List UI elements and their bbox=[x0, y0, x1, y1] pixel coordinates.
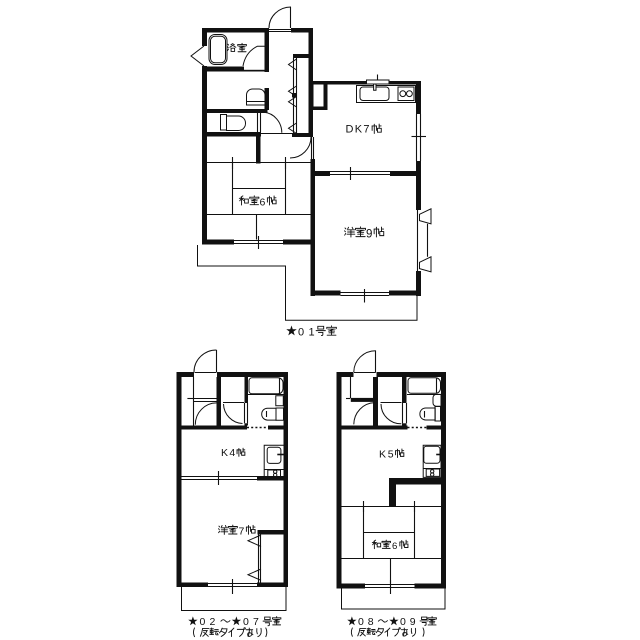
svg-text:7: 7 bbox=[239, 526, 245, 538]
svg-text:0: 0 bbox=[298, 327, 304, 339]
svg-text:0: 0 bbox=[400, 616, 406, 628]
svg-text:0: 0 bbox=[358, 616, 364, 628]
svg-text:1: 1 bbox=[309, 327, 315, 339]
svg-text:DK7: DK7 bbox=[346, 124, 371, 136]
svg-text:0: 0 bbox=[243, 616, 249, 628]
svg-text:2: 2 bbox=[210, 616, 216, 628]
svg-text:9: 9 bbox=[410, 616, 416, 628]
svg-text:6: 6 bbox=[392, 541, 397, 552]
svg-text:K5: K5 bbox=[379, 449, 395, 461]
svg-text:8: 8 bbox=[368, 616, 374, 628]
svg-text:0: 0 bbox=[200, 616, 206, 628]
svg-text:9: 9 bbox=[366, 229, 372, 241]
svg-text:7: 7 bbox=[253, 616, 259, 628]
svg-text:6: 6 bbox=[260, 197, 266, 209]
svg-text:K4: K4 bbox=[221, 447, 237, 459]
